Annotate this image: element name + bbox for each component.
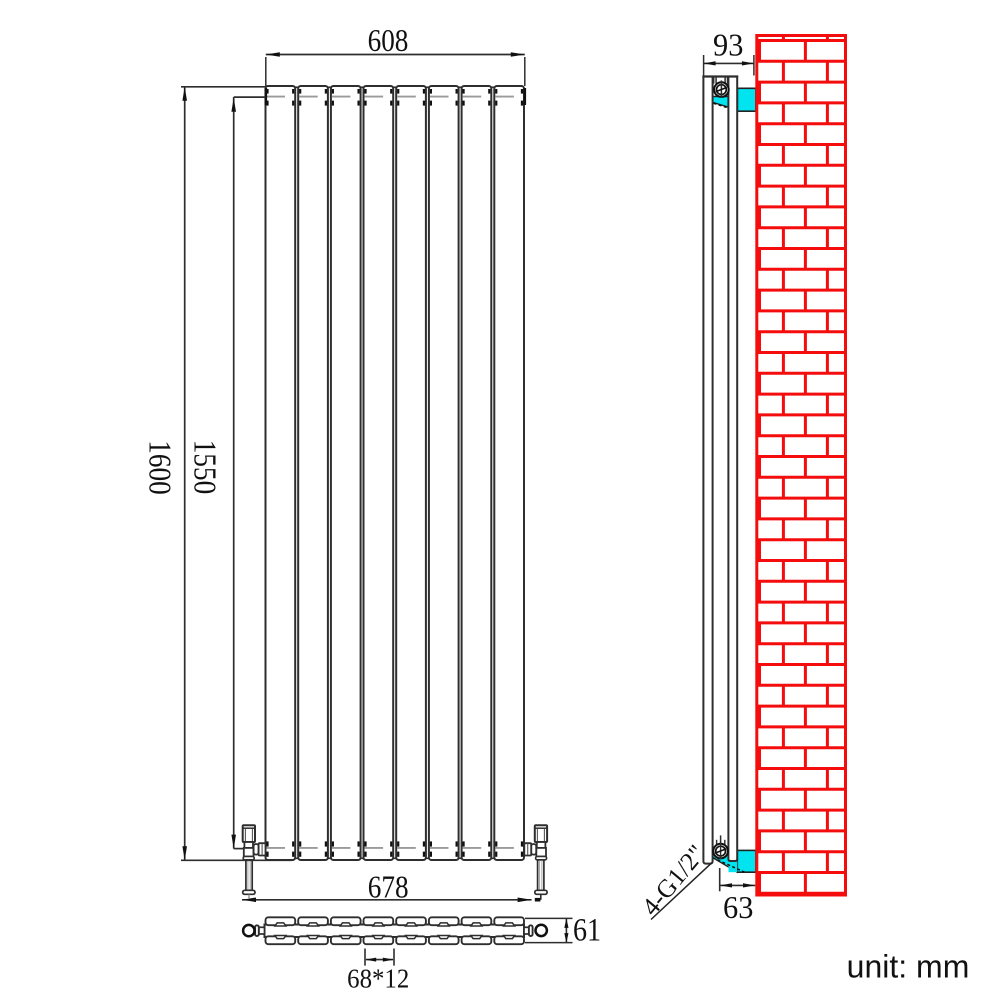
svg-text:68*12: 68*12: [347, 964, 409, 994]
svg-text:unit: mm: unit: mm: [847, 949, 970, 985]
svg-text:93: 93: [713, 27, 743, 63]
svg-text:61: 61: [573, 911, 601, 948]
svg-text:1600: 1600: [142, 440, 176, 494]
svg-text:63: 63: [723, 889, 753, 925]
svg-text:608: 608: [368, 24, 409, 58]
svg-text:678: 678: [368, 870, 409, 904]
svg-text:1550: 1550: [187, 440, 221, 494]
svg-text:4-G1/2": 4-G1/2": [636, 839, 711, 921]
